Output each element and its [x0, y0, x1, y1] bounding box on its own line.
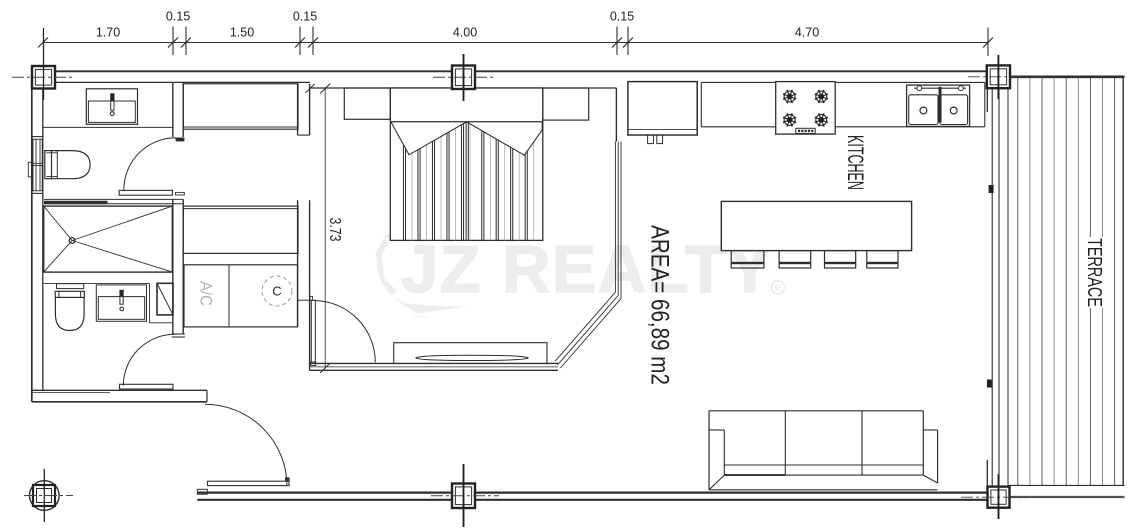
svg-text:0.15: 0.15	[293, 10, 317, 24]
svg-text:KITCHEN: KITCHEN	[843, 135, 868, 190]
svg-text:1.70: 1.70	[96, 26, 120, 40]
svg-text:C: C	[272, 284, 281, 299]
svg-text:AREA= 66,89 m2: AREA= 66,89 m2	[646, 225, 674, 385]
svg-text:A/C: A/C	[196, 281, 215, 306]
svg-text:1.50: 1.50	[230, 26, 254, 40]
svg-text:3.73: 3.73	[326, 218, 344, 242]
svg-text:0.15: 0.15	[166, 10, 190, 24]
svg-text:JZ REALTY: JZ REALTY	[401, 232, 773, 307]
svg-text:R: R	[775, 283, 782, 293]
svg-text:0.15: 0.15	[610, 10, 634, 24]
svg-text:TERRACE: TERRACE	[1083, 238, 1106, 307]
svg-text:4.70: 4.70	[795, 26, 819, 40]
svg-text:4.00: 4.00	[453, 26, 477, 40]
